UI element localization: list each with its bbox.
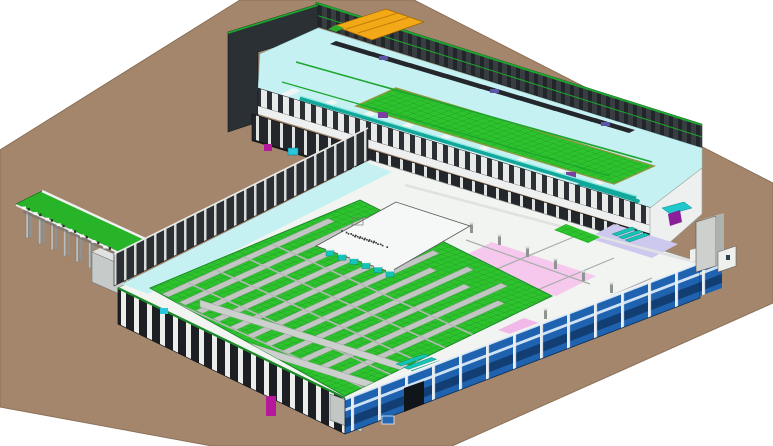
roof-beam-tab <box>57 223 61 226</box>
mezz-column <box>554 260 557 269</box>
roof-edge-unit <box>350 258 358 264</box>
roof-beam-tab <box>80 235 84 238</box>
vent-dot <box>350 233 352 235</box>
cyan-unit <box>288 148 298 155</box>
model-rendering <box>0 0 773 446</box>
canopy-column <box>39 218 41 244</box>
roof-beam-cap <box>109 247 111 250</box>
indigo-machine <box>379 56 388 60</box>
roof-beam-cap <box>62 225 64 228</box>
roof-beam-cap <box>51 219 53 222</box>
roof-beam-cap <box>39 214 41 217</box>
canopy-column-back <box>55 226 57 249</box>
small-cabinet <box>382 416 394 424</box>
mezz-column <box>582 272 585 281</box>
roof-edge-unit <box>326 250 334 256</box>
mezz-column <box>526 248 529 257</box>
canopy-column-back <box>80 238 82 261</box>
roof-edge-unit-top <box>350 257 358 259</box>
vent-dot <box>357 236 359 238</box>
mezz-column <box>470 224 473 233</box>
mezz-column-cap <box>582 271 586 273</box>
vent-dot <box>375 242 377 244</box>
vent-dot <box>363 239 365 241</box>
vent-dot <box>341 230 343 232</box>
vent-dot <box>352 234 354 236</box>
vent-dot <box>366 239 368 241</box>
roof-edge-unit-top <box>362 261 370 263</box>
roof-edge-unit <box>338 254 346 260</box>
roof-edge-unit-top <box>338 253 346 255</box>
roof-beam-tab <box>92 240 96 243</box>
vent-dot <box>382 245 384 247</box>
vent-dot <box>368 240 370 242</box>
vent-dot <box>346 232 348 234</box>
roof-beam-cap <box>74 230 76 233</box>
mezz-column <box>498 236 501 245</box>
cyan-unit <box>160 308 168 314</box>
roof-edge-unit-top <box>386 270 394 272</box>
vent-dot <box>371 240 373 242</box>
mezz-column-cap <box>544 309 548 311</box>
canopy-column-back <box>43 220 45 243</box>
roof-edge-unit <box>386 271 394 277</box>
vent-dot <box>361 237 363 239</box>
roof-beam-cap <box>28 208 30 211</box>
roof-beam-tab <box>68 229 72 232</box>
vent-dot <box>377 243 379 245</box>
vent-dot <box>359 237 361 239</box>
roof-edge-unit-top <box>374 265 382 267</box>
roof-edge-unit <box>362 263 370 269</box>
roof-beam-cap <box>86 236 88 239</box>
canopy-column-back <box>68 232 70 255</box>
canopy-column <box>26 212 28 238</box>
vent-dot <box>386 246 388 248</box>
roof-beam-tab <box>34 212 38 215</box>
vent-dot <box>380 243 382 245</box>
canopy-column <box>76 236 78 262</box>
roof-beam-tab <box>103 246 107 249</box>
bim-viewer-canvas <box>0 0 773 446</box>
mezz-column <box>544 310 547 319</box>
indigo-machine <box>601 122 610 126</box>
vent-dot <box>354 236 356 238</box>
roof-edge-unit <box>374 267 382 273</box>
mezz-column-cap <box>498 235 502 237</box>
roof-beam-tab <box>22 207 26 210</box>
canopy-column-back <box>30 214 32 237</box>
canopy-column <box>89 242 91 268</box>
purple-machine <box>378 112 388 118</box>
mezz-column-cap <box>470 223 474 225</box>
annex-window <box>726 255 730 260</box>
vent-dot <box>348 233 350 235</box>
magenta-unit <box>264 144 272 151</box>
mezz-column-cap <box>554 259 558 261</box>
vent-dot <box>372 242 374 244</box>
tower-front <box>696 216 716 272</box>
mezz-column-cap <box>610 283 614 285</box>
magenta-dock-unit <box>266 396 276 416</box>
canopy-column <box>51 224 53 250</box>
roof-beam-tab <box>45 218 49 221</box>
roof-beam-cap <box>97 242 99 245</box>
roof-edge-unit-top <box>326 249 334 251</box>
mezz-column <box>610 284 613 293</box>
mezz-column-cap <box>526 247 530 249</box>
indigo-machine <box>490 89 499 93</box>
canopy-column <box>64 230 66 256</box>
